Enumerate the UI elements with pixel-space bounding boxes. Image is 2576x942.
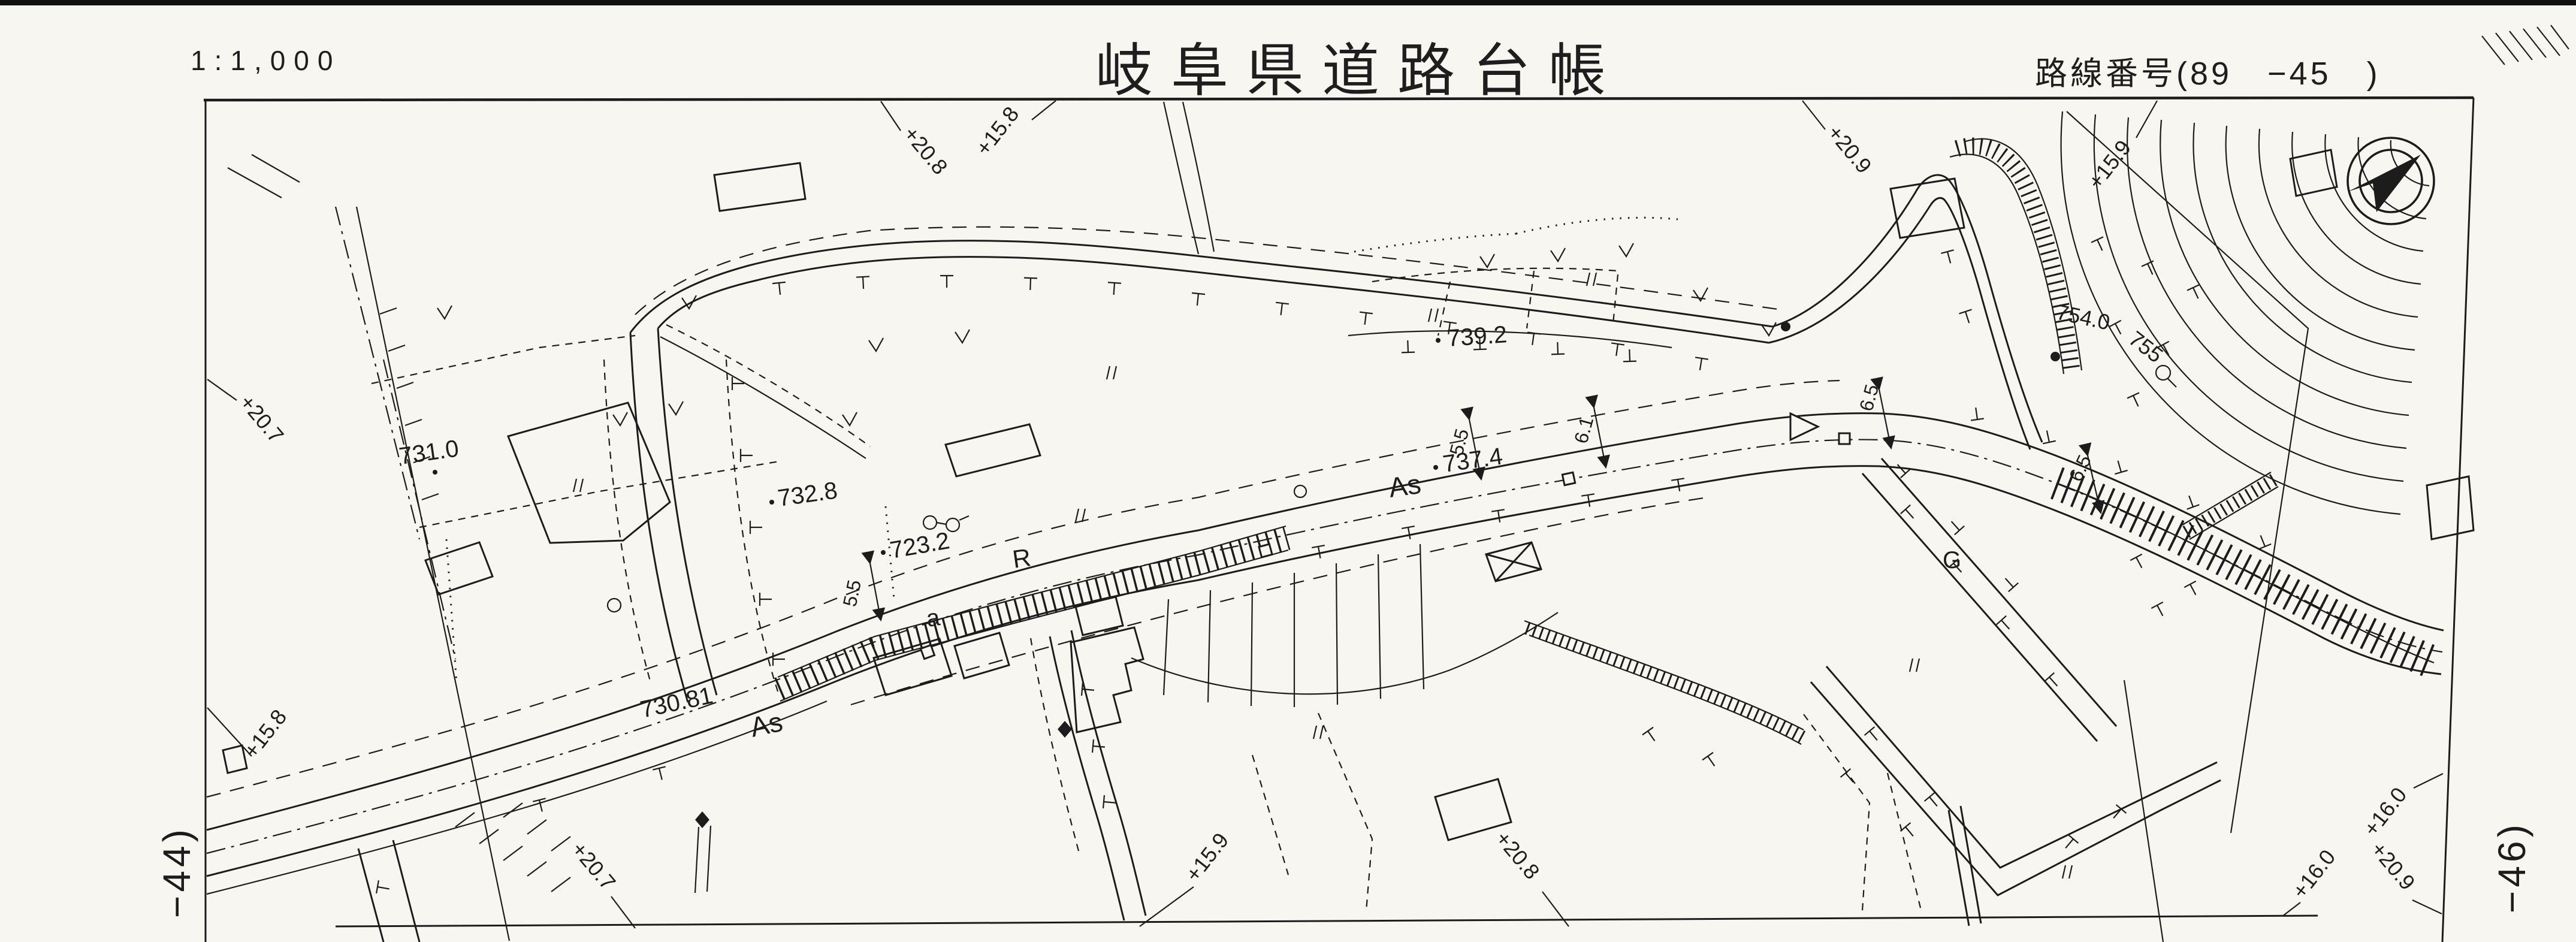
north-arrow-icon bbox=[2348, 138, 2434, 224]
map-label-station: +15.9 bbox=[1180, 828, 1233, 886]
map-label-station: +16.0 bbox=[2287, 845, 2340, 903]
map-label-station: +20.9 bbox=[2366, 837, 2420, 895]
station-leaders bbox=[207, 101, 2443, 928]
main-road bbox=[207, 381, 2444, 894]
sheet-cut-lines bbox=[228, 111, 2308, 942]
map-label-surface: As bbox=[747, 706, 785, 743]
map-label-elevation: 723.2 bbox=[888, 527, 952, 564]
map-label-station: +15.8 bbox=[238, 705, 291, 763]
map-labels: 731.0732.8723.2730.81739.2737.4754.0755A… bbox=[235, 102, 2420, 903]
map-label-elevation: 739.2 bbox=[1446, 321, 1508, 352]
slope-ticks bbox=[376, 237, 2271, 895]
frame bbox=[204, 25, 2569, 942]
map-label-width: 5.5 bbox=[839, 578, 865, 608]
map-label-surface: R bbox=[1011, 543, 1033, 573]
map-label-station: +20.8 bbox=[1491, 826, 1545, 884]
map-canvas: 731.0732.8723.2730.81739.2737.4754.0755A… bbox=[0, 0, 2576, 942]
map-label-surface: G bbox=[1943, 547, 1961, 573]
side-roads bbox=[358, 325, 2221, 942]
map-label-station: +20.8 bbox=[899, 122, 953, 179]
landuse-symbols bbox=[437, 243, 2072, 878]
map-label-station: +20.9 bbox=[1823, 120, 1877, 178]
map-label-surface: a bbox=[925, 604, 942, 632]
map-label-station: +20.7 bbox=[235, 390, 289, 448]
map-label-elevation: 732.8 bbox=[776, 477, 839, 512]
map-label-elevation: 731.0 bbox=[397, 435, 460, 470]
map-label-station: +20.7 bbox=[567, 837, 621, 895]
map-sheet: 1:1,000 岐阜県道路台帳 路線番号(89 −45 ) −44) −46) bbox=[0, 0, 2576, 942]
map-label-station: +15.8 bbox=[971, 102, 1023, 160]
map-label-width: 6.5 bbox=[1855, 382, 1883, 413]
map-label-surface: As bbox=[1387, 468, 1423, 503]
map-label-station: +16.0 bbox=[2358, 783, 2411, 841]
